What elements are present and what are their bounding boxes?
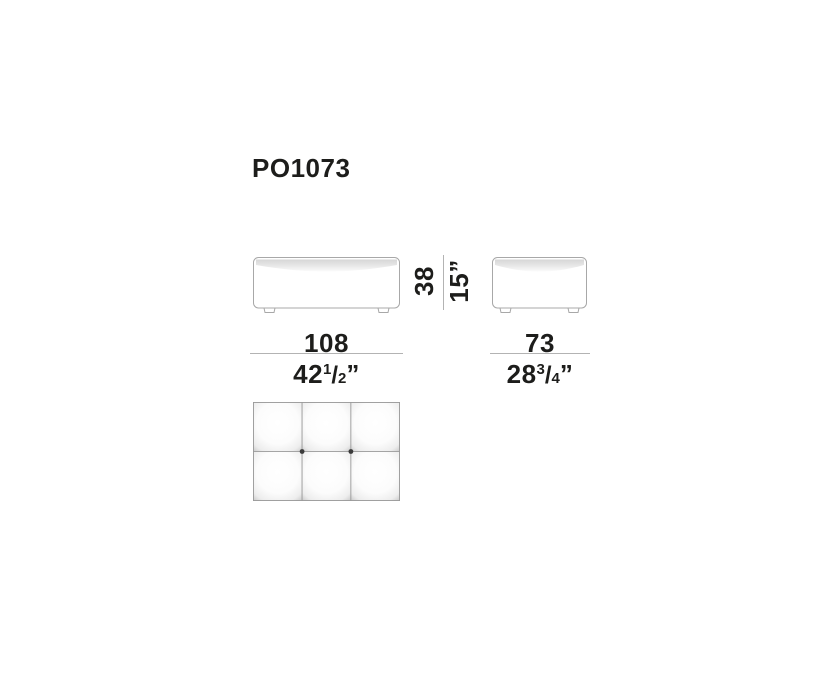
front-left-foot [264, 308, 275, 313]
depth-inch-slash: / [545, 362, 552, 389]
side-view-drawing [492, 257, 587, 320]
tufting-button [300, 449, 305, 454]
depth-inch-numerator: 3 [537, 361, 545, 378]
cushion-grid [253, 402, 399, 500]
front-view-drawing [253, 257, 400, 320]
drawing-canvas: PO1073 [0, 0, 840, 679]
depth-inch-whole: 28 [507, 359, 537, 389]
top-view-drawing [253, 402, 400, 506]
side-left-foot [500, 308, 511, 313]
cushion-cell [253, 452, 302, 501]
cushion-cell [351, 402, 400, 451]
side-view-svg [492, 257, 587, 315]
cushion-cell [253, 402, 302, 451]
height-cm-label: 38 [411, 251, 437, 311]
front-right-foot [378, 308, 389, 313]
front-view-svg [253, 257, 400, 315]
side-right-foot [568, 308, 579, 313]
cushion-cell [302, 402, 351, 451]
tufting-button [349, 449, 354, 454]
depth-inch-label: 283/4” [490, 361, 590, 388]
depth-inch-denominator: 4 [552, 370, 560, 387]
top-view-svg [253, 402, 400, 501]
cushion-cell [351, 452, 400, 501]
depth-dimension-line [490, 353, 590, 354]
depth-inch-mark: ” [560, 359, 574, 389]
cushion-cell [302, 452, 351, 501]
width-inch-label: 421/2” [250, 361, 403, 388]
width-inch-mark: ” [346, 359, 360, 389]
width-dimension-line [250, 353, 403, 354]
width-inch-whole: 42 [293, 359, 323, 389]
product-code-title: PO1073 [252, 153, 350, 184]
height-inch-label: 15” [446, 251, 472, 311]
